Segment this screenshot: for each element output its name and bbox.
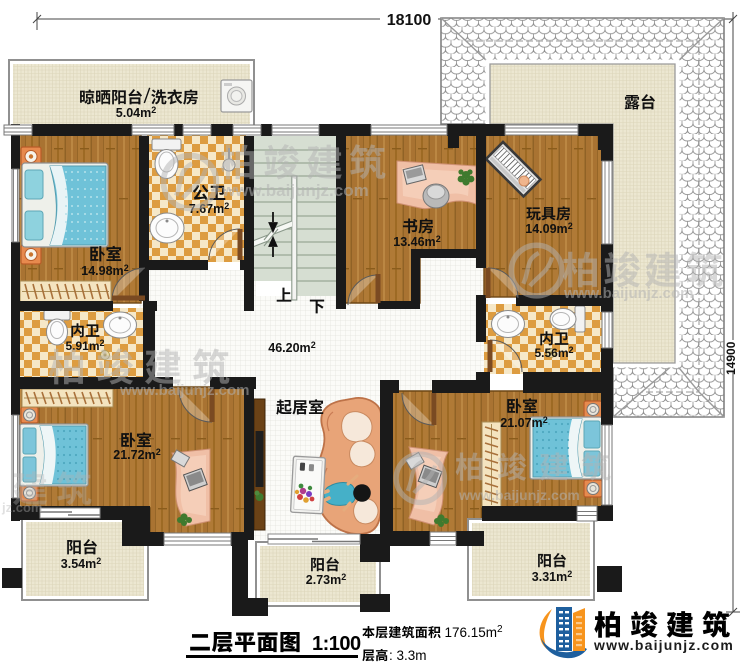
- svg-text:: 3.3m: : 3.3m: [389, 648, 427, 663]
- svg-text:www.baijunjz.com: www.baijunjz.com: [563, 285, 693, 302]
- svg-text:18100: 18100: [387, 12, 432, 29]
- svg-text:3.31m2: 3.31m2: [532, 569, 572, 584]
- svg-text:14900: 14900: [724, 341, 738, 375]
- svg-text:www.baijunjz.com: www.baijunjz.com: [593, 637, 734, 653]
- svg-text:13.46m2: 13.46m2: [393, 234, 440, 249]
- svg-text:21.07m2: 21.07m2: [500, 415, 547, 430]
- svg-text:5.56m2: 5.56m2: [534, 345, 573, 360]
- svg-text:21.72m2: 21.72m2: [113, 447, 160, 462]
- svg-text:: 176.15m2: : 176.15m2: [437, 624, 503, 640]
- svg-text:14.09m2: 14.09m2: [525, 221, 572, 236]
- svg-text:www.baijunjz.com: www.baijunjz.com: [458, 487, 580, 503]
- svg-text:3.54m2: 3.54m2: [61, 556, 101, 571]
- svg-text:www.baijunjz.com: www.baijunjz.com: [119, 382, 249, 399]
- svg-text:14.98m2: 14.98m2: [81, 263, 128, 278]
- svg-text:www.baijunjz.com: www.baijunjz.com: [221, 181, 369, 200]
- svg-text:jz.com: jz.com: [1, 500, 42, 515]
- svg-text:1:100: 1:100: [312, 633, 361, 655]
- svg-text:5.04m2: 5.04m2: [116, 105, 156, 120]
- svg-text:46.20m2: 46.20m2: [268, 340, 315, 355]
- svg-text:2.73m2: 2.73m2: [306, 572, 346, 587]
